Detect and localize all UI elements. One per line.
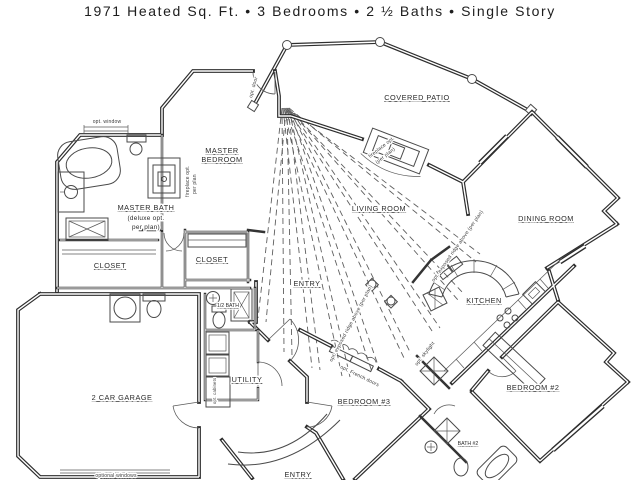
utility-cabinet [206,377,230,407]
bath2-tub [475,444,519,480]
master-bath-tub [56,135,123,192]
label-covered-patio: COVERED PATIO [384,93,449,102]
label-master-bath: MASTER BATH [118,203,175,212]
window-walls [480,136,603,450]
washer-dryer [206,332,230,407]
ceiling-ray-lines [258,108,480,377]
stove-burner [497,315,503,321]
floor-plan-drawing: 1971 Heated Sq. Ft. • 3 Bedrooms • 2 ½ B… [0,0,640,480]
label-bath2: BATH #2 [458,441,479,447]
note-optional-windows: optional windows [95,473,137,479]
master-bath-toilet [127,135,146,155]
patio-post [283,41,292,50]
floor-plan-page: 1971 Heated Sq. Ft. • 3 Bedrooms • 2 ½ B… [0,0,640,480]
label-closet-right: CLOSET [196,255,228,264]
skylight-boxes [420,357,460,444]
water-heater [110,294,140,322]
kitchen-corner-unit [423,287,447,311]
note-fireplace-master-1: fireplace opt. [185,166,191,197]
stove-burner [505,308,511,314]
note-opt-window: opt. window [93,119,122,125]
label-master-bedroom-line2: BEDROOM [201,155,242,164]
master-fireplace [148,158,180,198]
label-master-bath-note1: (deluxe opt. [128,215,165,222]
label-bedroom2: BEDROOM #2 [507,383,560,392]
label-kitchen: KITCHEN [466,296,502,305]
stove-burner [504,322,510,328]
label-garage: 2 CAR GARAGE [92,393,153,402]
garage-laundry-tub [143,294,165,318]
note-french-doors: opt. French doors [339,364,380,388]
label-entry-upper: ENTRY [293,279,320,288]
note-ridge-1: opt. exposed ridge above (per plan) [328,284,374,363]
label-master-bedroom-line1: MASTER [205,146,238,155]
patio-post [468,75,477,84]
note-fireplace-master-2: per plan [192,174,198,194]
note-opt-cabinets: opt. cabinets [212,378,217,404]
label-closet-left: CLOSET [94,261,126,270]
patio-rail [247,38,536,116]
label-dining-room: DINING ROOM [518,214,574,223]
label-half-bath: 1/2 BATH [217,303,239,309]
label-utility: UTILITY [232,375,263,384]
patio-post [376,38,385,47]
plan-title: 1971 Heated Sq. Ft. • 3 Bedrooms • 2 ½ B… [84,3,556,19]
label-living-room: LIVING ROOM [352,204,406,213]
interior-walls [57,135,466,462]
label-master-bath-note2: per plan) [132,224,160,231]
label-bedroom3: BEDROOM #3 [338,397,391,406]
bath2-toilet [454,458,468,476]
label-entry-lower: ENTRY [284,470,311,479]
master-bath-shower [66,218,108,240]
